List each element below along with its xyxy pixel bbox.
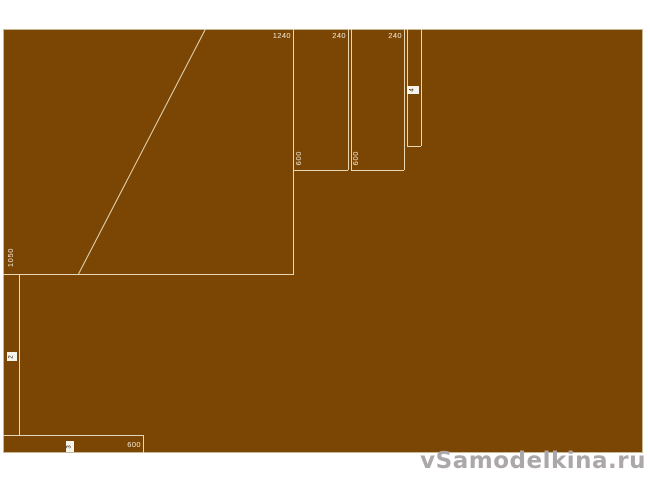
- piece-number-label: 3: [67, 445, 73, 448]
- dim-strip1-height: 600: [295, 151, 303, 165]
- big-piece-diagonal-cut: [79, 29, 206, 274]
- cutting-layout-page: 1240 240 240 600 600 1050 600 4 2 3 vSam…: [0, 0, 650, 487]
- dim-big-width: 1240: [273, 32, 291, 40]
- cut-lines: [3, 29, 643, 453]
- piece-number-box-2: 2: [7, 352, 17, 361]
- piece-number-box-4: 4: [407, 86, 419, 94]
- dim-bottom-strip-length: 600: [127, 441, 141, 449]
- piece-number-box-3: 3: [66, 441, 74, 452]
- dim-strip2-height: 600: [352, 151, 360, 165]
- watermark: vSamodelkina.ru: [420, 448, 646, 474]
- dim-big-height: 1050: [7, 248, 15, 267]
- dim-strip2-width: 240: [388, 32, 402, 40]
- dim-strip1-width: 240: [332, 32, 346, 40]
- sheet-border: [4, 30, 643, 453]
- piece-number-label: 4: [410, 88, 416, 91]
- chipboard-sheet: 1240 240 240 600 600 1050 600 4 2 3: [3, 29, 643, 453]
- piece-number-label: 2: [9, 355, 15, 358]
